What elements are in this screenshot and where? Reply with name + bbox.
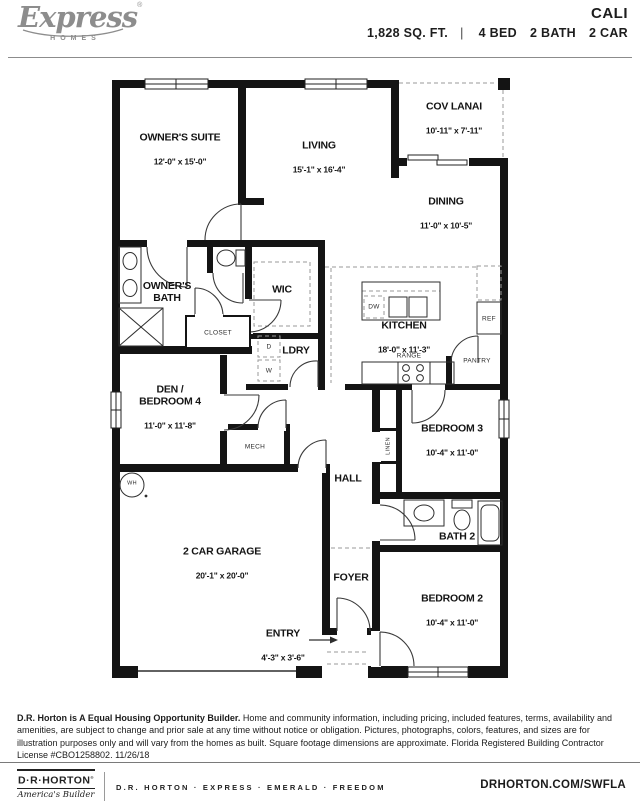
express-homes-logo: Express® HOMES bbox=[18, 2, 128, 42]
label-washer: W bbox=[266, 368, 272, 375]
brand-sub-text: HOMES bbox=[18, 35, 128, 42]
footer-divider bbox=[104, 772, 105, 801]
entry-arrow bbox=[309, 637, 338, 644]
label-linen: LINEN bbox=[386, 437, 393, 455]
label-ref: REF bbox=[482, 316, 496, 323]
label-wh: WH bbox=[127, 481, 137, 488]
footer-website: DRHORTON.COM/SWFLA bbox=[480, 779, 626, 791]
room-label-hall: HALL bbox=[334, 459, 361, 497]
label-pantry: PANTRY bbox=[463, 358, 491, 365]
label-range: RANGE bbox=[397, 353, 422, 360]
sliding-door bbox=[408, 155, 467, 165]
drhorton-tagline: America's Builder bbox=[16, 790, 96, 800]
room-label-garage: 2 CAR GARAGE 20'-1" x 20'-0" bbox=[183, 533, 261, 594]
floorplan-drawing bbox=[0, 0, 640, 812]
label-closet: CLOSET bbox=[204, 330, 232, 337]
spec-divider: | bbox=[460, 26, 464, 40]
room-label-wic: WIC bbox=[272, 270, 292, 308]
disclaimer-bold: D.R. Horton is A Equal Housing Opportuni… bbox=[17, 713, 240, 723]
spec-car: 2 CAR bbox=[589, 26, 628, 40]
plan-specs: 1,828 SQ. FT.|4 BED2 BATH2 CAR bbox=[367, 26, 628, 40]
toilet-icon bbox=[217, 250, 235, 266]
registered-mark: ® bbox=[137, 2, 142, 9]
header-rule bbox=[8, 57, 632, 58]
room-label-foyer: FOYER bbox=[333, 558, 368, 596]
sink-icon bbox=[414, 505, 434, 521]
floorplan-sheet: Express® HOMES CALI 1,828 SQ. FT.|4 BED2… bbox=[0, 0, 640, 812]
spec-bed: 4 BED bbox=[479, 26, 517, 40]
label-mech: MECH bbox=[245, 444, 265, 451]
dashed-lines bbox=[254, 83, 503, 664]
room-label-ldry: LDRY bbox=[282, 331, 309, 369]
plan-name: CALI bbox=[591, 5, 628, 22]
registered-mark: ® bbox=[91, 775, 94, 780]
drhorton-logo: D·R·HORTON® America's Builder bbox=[16, 769, 96, 800]
room-label-bedroom3: BEDROOM 3 10'-4" x 11'-0" bbox=[421, 410, 483, 471]
brand-script-text: Express bbox=[18, 0, 137, 34]
drhorton-logo-name: D·R·HORTON® bbox=[17, 769, 95, 789]
room-label-owners-suite: OWNER'S SUITE 12'-0" x 15'-0" bbox=[140, 119, 221, 180]
footer-brands: D.R. HORTON · EXPRESS · EMERALD · FREEDO… bbox=[116, 783, 386, 792]
tub-icon bbox=[478, 501, 502, 545]
room-label-entry: ENTRY 4'-3" x 3'-6" bbox=[261, 615, 305, 676]
room-label-bath2: BATH 2 bbox=[439, 517, 475, 555]
label-dw: DW bbox=[368, 304, 379, 311]
room-label-cov-lanai: COV LANAI 10'-11" x 7'-11" bbox=[426, 88, 482, 149]
room-label-living: LIVING 15'-1" x 16'-4" bbox=[293, 127, 346, 188]
room-label-owners-bath: OWNER'S BATH bbox=[143, 267, 191, 317]
room-label-den-bedroom4: DEN / BEDROOM 4 11'-0" x 11'-8" bbox=[139, 370, 201, 444]
spec-sqft: 1,828 SQ. FT. bbox=[367, 26, 448, 40]
room-label-dining: DINING 11'-0" x 10'-5" bbox=[420, 183, 472, 244]
spec-bath: 2 BATH bbox=[530, 26, 576, 40]
disclaimer-text: D.R. Horton is A Equal Housing Opportuni… bbox=[17, 712, 624, 762]
label-dryer: D bbox=[267, 344, 272, 351]
room-label-bedroom2: BEDROOM 2 10'-4" x 11'-0" bbox=[421, 580, 483, 641]
footer-rule bbox=[0, 762, 640, 763]
